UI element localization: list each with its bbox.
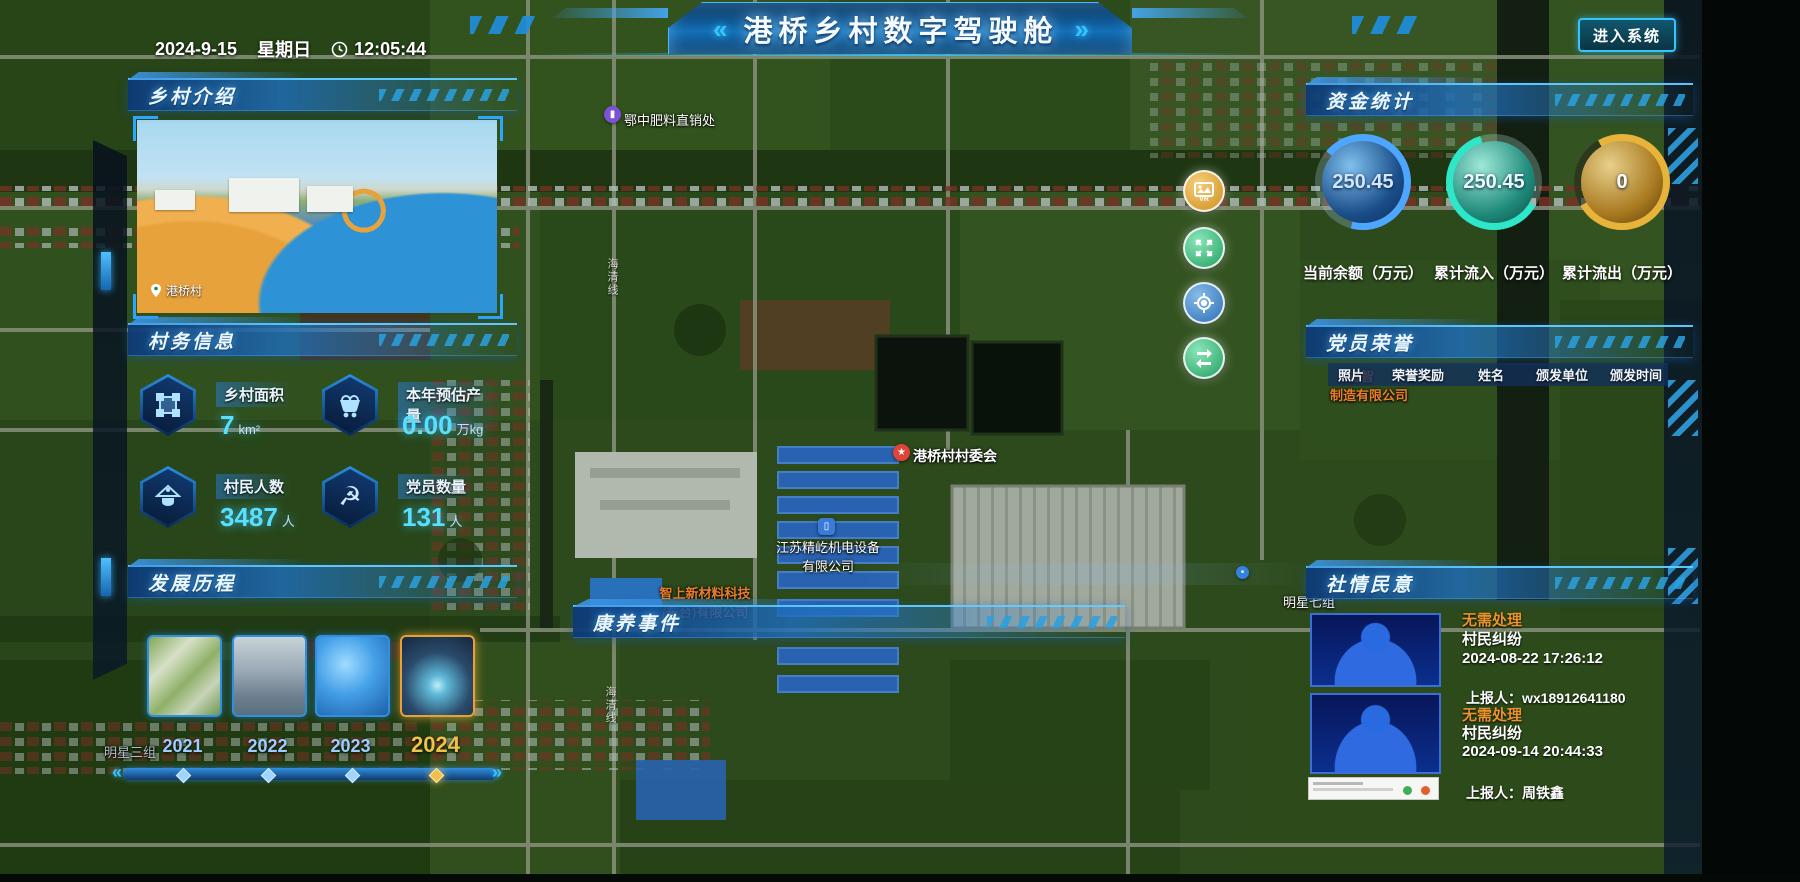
title-chevron-right: » — [1075, 14, 1089, 45]
history-thumb-2024[interactable] — [400, 635, 475, 717]
layer-switch-button[interactable] — [1183, 337, 1225, 379]
villagers-icon — [140, 466, 196, 528]
map-label-fertilizer[interactable]: 鄂中肥料直销处 — [624, 110, 715, 129]
col-award: 荣誉奖励 — [1374, 365, 1462, 384]
banner-stripes-left — [470, 16, 540, 34]
time-text: 12:05:44 — [354, 39, 426, 60]
timeline-right-arrow[interactable]: » — [492, 762, 502, 783]
committee-pin-icon[interactable]: ★ — [893, 444, 910, 461]
village-photo[interactable]: 港桥村 — [137, 120, 497, 313]
page-title-banner: « 港桥乡村数字驾驶舱 » — [668, 2, 1134, 56]
col-date: 颁发时间 — [1604, 365, 1668, 384]
photo-corner — [133, 294, 158, 319]
right-frame-inner — [1664, 0, 1704, 882]
opinion-screenshot-thumb[interactable] — [1308, 777, 1439, 800]
gauge-balance: 250.45 — [1315, 134, 1411, 230]
vr-photo-button[interactable]: VR — [1183, 170, 1225, 212]
stat-villagers: 村民人数 3487人 — [140, 462, 320, 550]
honors-table-header: 照片 荣誉奖励 姓名 颁发单位 颁发时间 — [1328, 363, 1668, 386]
opinion-datetime: 2024-08-22 17:26:12 — [1462, 650, 1603, 668]
map-label-committee[interactable]: 港桥村村委会 — [913, 446, 997, 466]
banner-wing-right — [1132, 8, 1248, 18]
stat-party: ☭ 党员数量 131人 — [322, 462, 502, 550]
expand-icon — [1194, 238, 1214, 258]
opinion-type: 村民纠纷 — [1462, 631, 1522, 649]
enter-system-button[interactable]: 进入系统 — [1578, 18, 1676, 52]
stat-area: 乡村面积 7km² — [140, 370, 320, 458]
page-title: 港桥乡村数字驾驶舱 — [743, 8, 1058, 50]
history-thumb-2023[interactable] — [315, 635, 390, 717]
clock-icon — [331, 41, 348, 58]
area-icon — [140, 374, 196, 436]
datetime-bar: 2024-9-15 星期日 12:05:44 — [155, 36, 426, 62]
shop-pin-icon[interactable]: ▮ — [604, 106, 621, 123]
gauge-outflow: 0 — [1574, 134, 1670, 230]
col-name: 姓名 — [1462, 365, 1520, 384]
opinion-reporter: 上报人：周铁鑫 — [1466, 783, 1564, 803]
year-2022[interactable]: 2022 — [232, 736, 303, 757]
stat-output: 本年预估产量 0.00万kg — [322, 370, 502, 458]
gauge-inflow: 250.45 — [1446, 134, 1542, 230]
locate-icon — [1193, 292, 1215, 314]
gauge-outflow-value: 0 — [1616, 171, 1627, 194]
opinion-avatar — [1310, 693, 1441, 774]
year-2024[interactable]: 2024 — [400, 732, 471, 758]
date-text: 2024-9-15 — [155, 39, 237, 60]
opinion-type: 村民纠纷 — [1462, 725, 1522, 743]
photo-corner — [133, 116, 158, 141]
photo-corner — [478, 116, 503, 141]
col-issuer: 颁发单位 — [1520, 365, 1604, 384]
svg-text:VR: VR — [1199, 196, 1209, 202]
gauge-inflow-label: 累计流入（万元） — [1424, 262, 1564, 283]
vr-photo-icon: VR — [1193, 180, 1215, 202]
col-photo: 照片 — [1328, 365, 1374, 384]
opinion-status: 无需处理 — [1462, 612, 1522, 630]
year-2023[interactable]: 2023 — [315, 736, 386, 757]
photo-corner — [478, 294, 503, 319]
road-label-top: 海清线 — [604, 258, 620, 297]
switch-arrows-icon — [1193, 347, 1215, 369]
locate-button[interactable] — [1183, 282, 1225, 324]
history-thumb-2022[interactable] — [232, 635, 307, 717]
opinion-avatar — [1310, 613, 1441, 687]
panel-header-affairs: 村务信息 — [128, 323, 517, 356]
gauge-outflow-label: 累计流出（万元） — [1552, 262, 1692, 283]
title-chevron-left: « — [713, 14, 727, 45]
cart-icon — [322, 374, 378, 436]
expand-button[interactable] — [1183, 227, 1225, 269]
left-frame — [93, 140, 127, 680]
building-pin-icon[interactable]: ▯ — [818, 518, 835, 535]
opinion-datetime: 2024-09-14 20:44:33 — [1462, 743, 1603, 761]
dashboard-screen: ▮ 鄂中肥料直销处 ★ 港桥村村委会 ▯ 江苏精屹机电设备 有限公司 智上新材料… — [0, 0, 1800, 882]
bottom-frame — [0, 874, 1800, 882]
weekday-text: 星期日 — [257, 36, 311, 62]
year-2021[interactable]: 2021 — [147, 736, 218, 757]
gauge-inflow-value: 250.45 — [1463, 171, 1524, 194]
gauge-balance-value: 250.45 — [1332, 171, 1393, 194]
panel-header-funds: 资金统计 — [1306, 83, 1693, 116]
timeline-left-arrow[interactable]: « — [112, 762, 122, 783]
panel-header-history: 发展历程 — [128, 565, 517, 598]
party-icon: ☭ — [322, 466, 378, 528]
panel-header-opinions: 社情民意 — [1306, 566, 1693, 599]
history-thumb-2021[interactable] — [147, 635, 222, 717]
panel-header-honors: 党员荣誉 — [1306, 325, 1693, 358]
road-label-bottom: 海清线 — [602, 686, 618, 725]
banner-wing-left — [552, 8, 668, 18]
banner-stripes-right — [1352, 16, 1422, 34]
panel-header-intro: 乡村介绍 — [128, 78, 517, 111]
panel-header-events: 康养事件 — [573, 605, 1125, 638]
right-frame — [1702, 0, 1800, 882]
opinion-status: 无需处理 — [1462, 707, 1522, 725]
glass-streak — [860, 563, 1320, 585]
gauge-balance-label: 当前余额（万元） — [1293, 262, 1433, 283]
photo-caption: 港桥村 — [151, 282, 202, 299]
